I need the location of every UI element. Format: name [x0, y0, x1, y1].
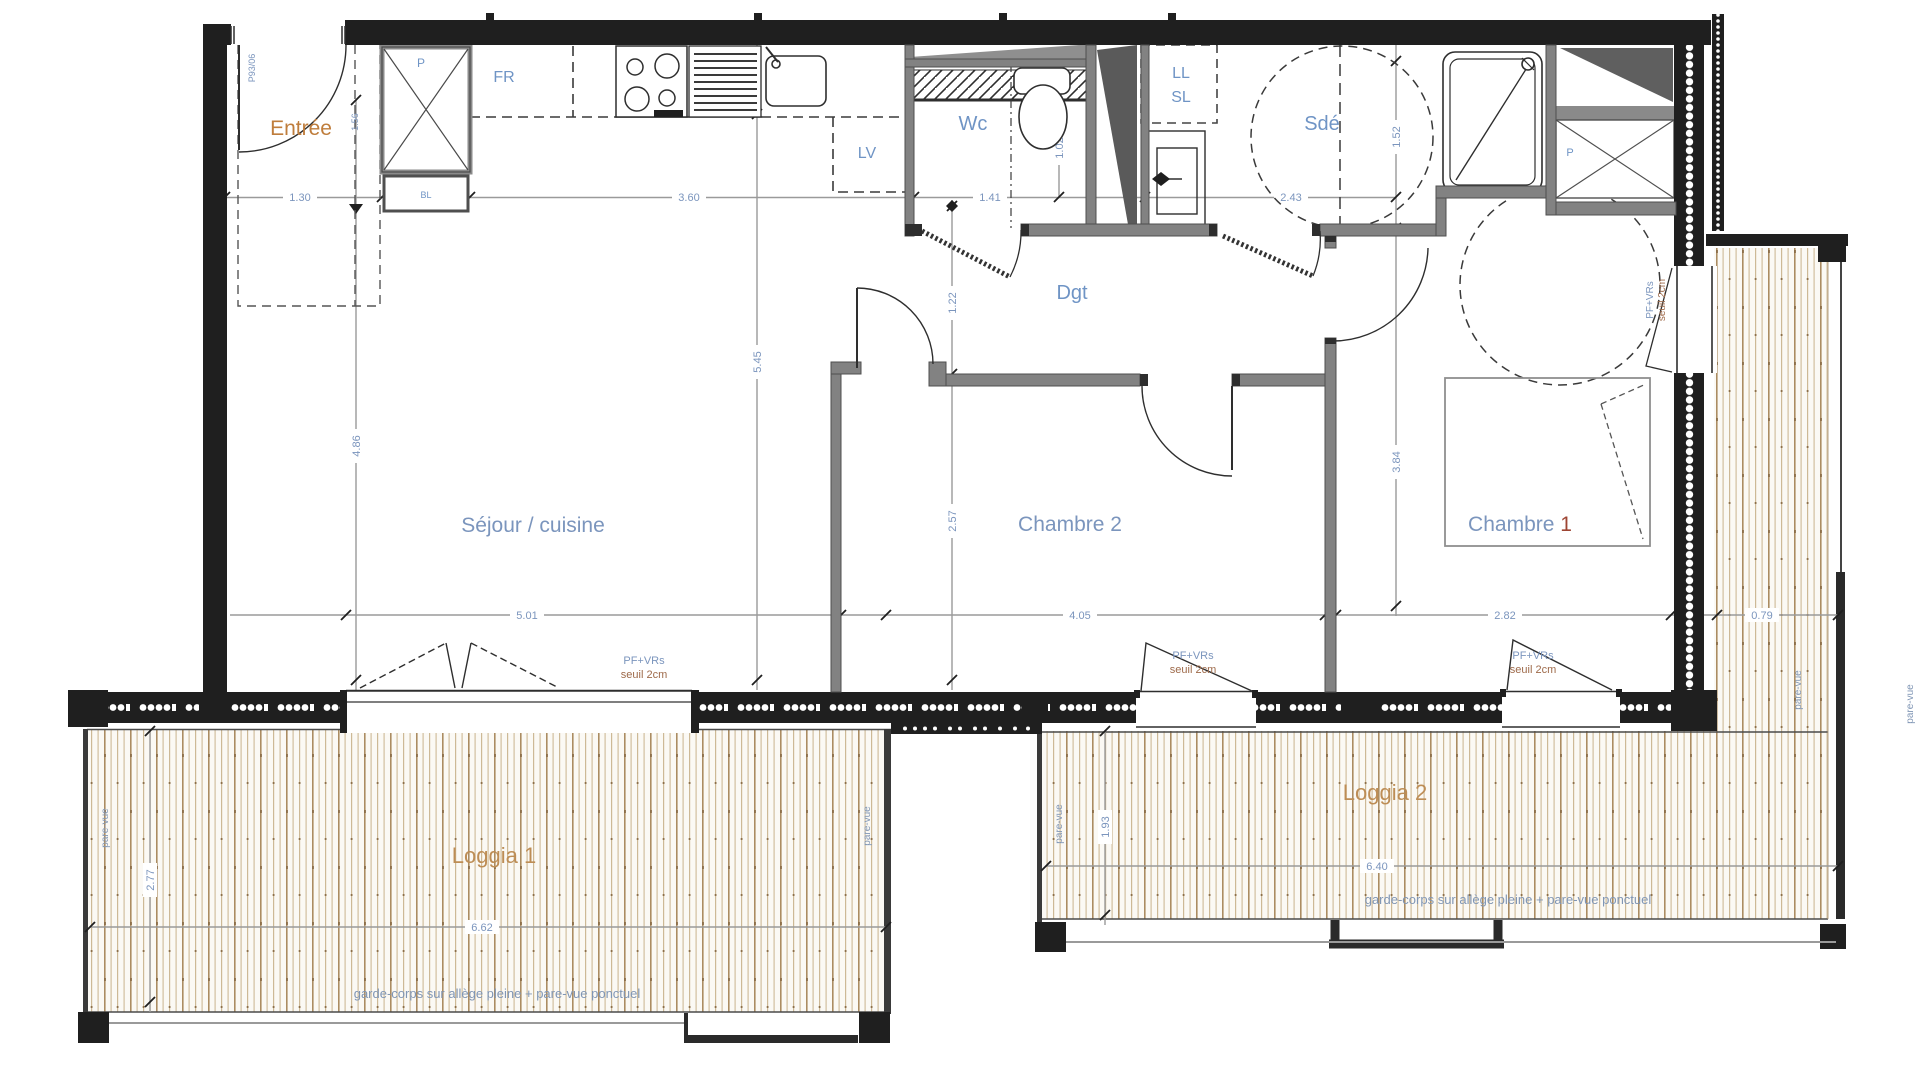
- svg-text:PF+VRs: PF+VRs: [1172, 650, 1214, 662]
- svg-text:PF+VRs: PF+VRs: [1645, 281, 1656, 319]
- svg-text:3.84: 3.84: [1391, 451, 1403, 472]
- svg-text:Entrée: Entrée: [270, 117, 332, 140]
- svg-text:Séjour / cuisine: Séjour / cuisine: [461, 514, 605, 537]
- svg-text:1.56: 1.56: [350, 113, 360, 131]
- svg-text:seuil 2cm: seuil 2cm: [1170, 664, 1216, 676]
- svg-text:1.52: 1.52: [1391, 126, 1403, 147]
- svg-text:4.86: 4.86: [351, 435, 363, 456]
- svg-text:Sdé: Sdé: [1304, 113, 1340, 135]
- svg-text:6.62: 6.62: [471, 922, 492, 934]
- svg-text:garde-corps sur allège pleine: garde-corps sur allège pleine + pare-vue…: [354, 986, 641, 1001]
- svg-text:Loggia 2: Loggia 2: [1343, 780, 1427, 805]
- svg-text:2.82: 2.82: [1494, 610, 1515, 622]
- svg-text:3.60: 3.60: [678, 192, 699, 204]
- svg-text:1.93: 1.93: [1100, 816, 1112, 837]
- svg-text:5.45: 5.45: [752, 351, 764, 372]
- svg-text:LV: LV: [858, 145, 877, 162]
- svg-text:pare-vue: pare-vue: [862, 806, 873, 846]
- svg-text:seuil 2cm: seuil 2cm: [1657, 279, 1668, 321]
- svg-text:2.57: 2.57: [947, 510, 959, 531]
- svg-text:FR: FR: [493, 69, 514, 86]
- svg-text:LL: LL: [1172, 65, 1190, 82]
- svg-text:Chambre 1: Chambre 1: [1468, 513, 1572, 536]
- svg-text:Loggia 1: Loggia 1: [452, 843, 536, 868]
- svg-text:pare-vue: pare-vue: [1905, 684, 1916, 724]
- svg-text:Wc: Wc: [959, 113, 988, 135]
- svg-text:P: P: [417, 56, 425, 70]
- svg-text:BL: BL: [420, 190, 431, 200]
- svg-text:seuil 2cm: seuil 2cm: [621, 669, 667, 681]
- svg-text:PF+VRs: PF+VRs: [623, 655, 665, 667]
- svg-text:pare-vue: pare-vue: [100, 808, 111, 848]
- svg-text:SL: SL: [1171, 89, 1191, 106]
- svg-text:1.41: 1.41: [979, 192, 1000, 204]
- svg-text:garde-corps sur allège pleine: garde-corps sur allège pleine + pare-vue…: [1365, 892, 1652, 907]
- svg-text:2.43: 2.43: [1280, 192, 1301, 204]
- svg-text:0.79: 0.79: [1751, 610, 1772, 622]
- svg-text:pare-vue: pare-vue: [1054, 804, 1065, 844]
- svg-text:6.40: 6.40: [1366, 861, 1387, 873]
- svg-text:pare-vue: pare-vue: [1793, 670, 1804, 710]
- svg-text:Dgt: Dgt: [1056, 282, 1088, 304]
- svg-text:P93/06: P93/06: [247, 54, 257, 83]
- svg-text:seuil 2cm: seuil 2cm: [1510, 664, 1556, 676]
- svg-text:PF+VRs: PF+VRs: [1512, 650, 1554, 662]
- svg-text:P: P: [1566, 147, 1573, 159]
- svg-text:5.01: 5.01: [516, 610, 537, 622]
- svg-text:1.22: 1.22: [947, 292, 959, 313]
- svg-text:Chambre 2: Chambre 2: [1018, 513, 1122, 536]
- svg-text:4.05: 4.05: [1069, 610, 1090, 622]
- svg-text:1.30: 1.30: [289, 192, 310, 204]
- svg-text:2.77: 2.77: [145, 869, 157, 890]
